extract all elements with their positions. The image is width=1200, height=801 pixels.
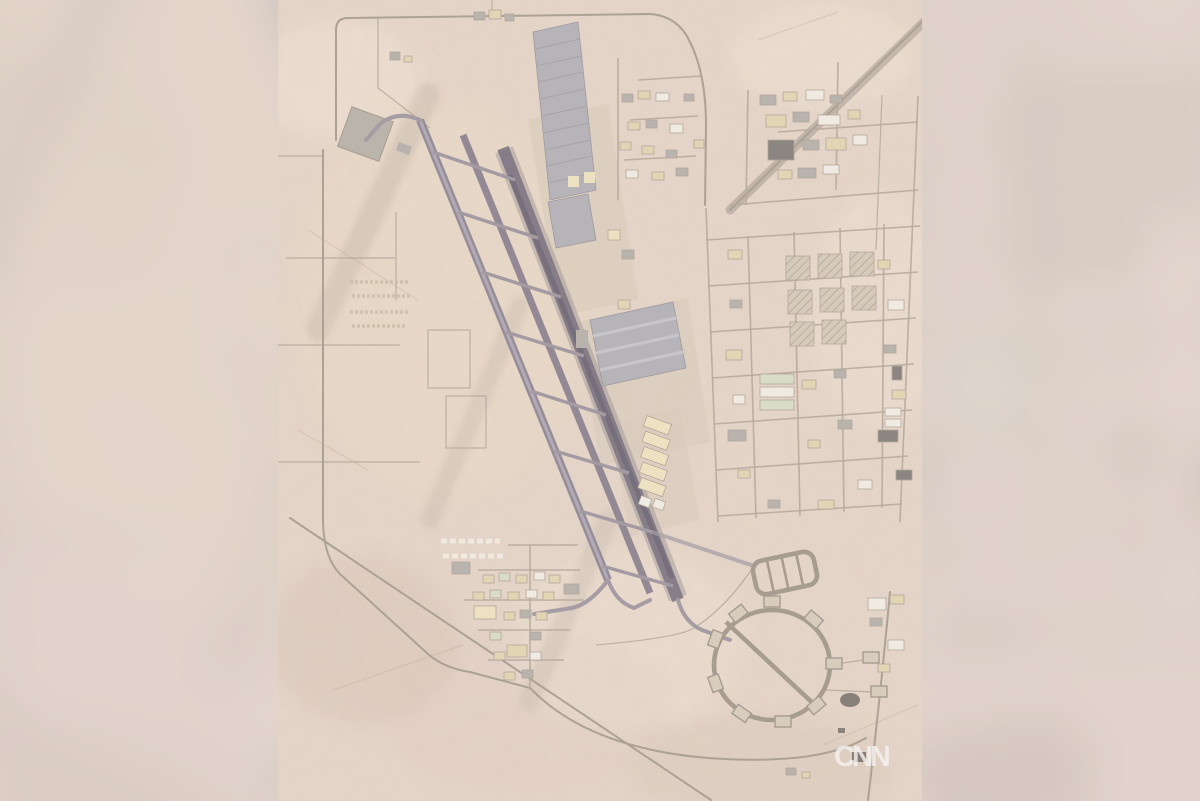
video-frame [0,0,1200,801]
satellite-photo [278,0,922,801]
photo-scene [278,0,922,801]
